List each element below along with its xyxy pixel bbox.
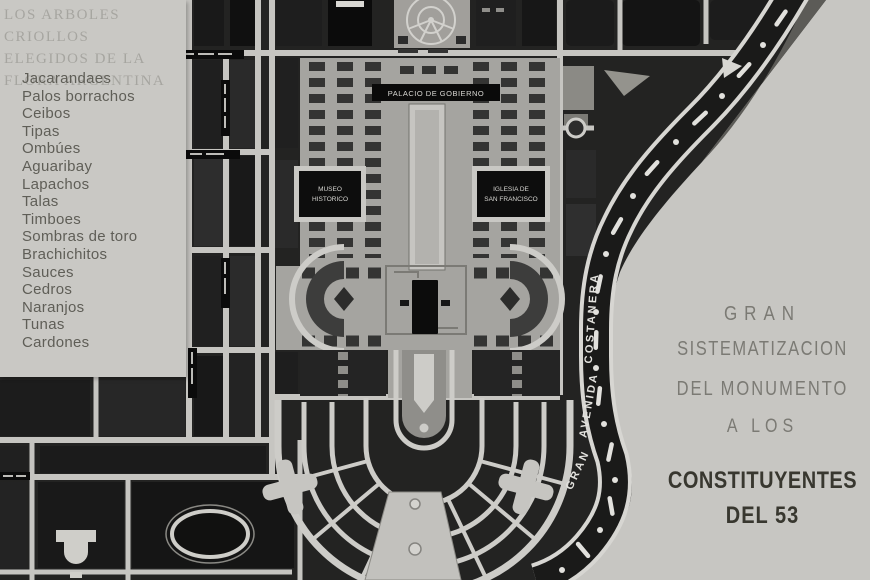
tree-list-item: Palos borrachos [22, 88, 182, 106]
tree-list-item: Lapachos [22, 176, 182, 194]
panel-title-line: LOS ARBOLES CRIOLLOS [4, 4, 182, 48]
san-francisco-church-block: IGLESIA DE SAN FRANCISCO [472, 166, 550, 222]
tree-list-item: Timboes [22, 211, 182, 229]
government-annex-block [328, 0, 372, 46]
central-monument [412, 280, 438, 334]
caption-line-constituyentes: CONSTITUYENTES [655, 467, 870, 495]
government-palace-block: PALACIO DE GOBIERNO [372, 84, 500, 101]
caption-line-del-monumento: DEL MONUMENTO [655, 378, 870, 401]
caption-line-del-53: DEL 53 [655, 502, 870, 530]
tree-list-item: Brachichitos [22, 246, 182, 264]
tree-list-item: Sauces [22, 264, 182, 282]
iglesia-label-line1: IGLESIA DE [493, 186, 529, 193]
palacio-label: PALACIO DE GOBIERNO [388, 89, 484, 98]
tree-list-item: Naranjos [22, 299, 182, 317]
tree-list-item: Talas [22, 193, 182, 211]
caption-block: GRAN SISTEMATIZACION DEL MONUMENTO A LOS… [655, 290, 870, 550]
tree-list-item: Cardones [22, 334, 182, 352]
tree-list-item: Cedros [22, 281, 182, 299]
reflecting-pool [409, 104, 445, 270]
caption-line-sistematizacion: SISTEMATIZACION [655, 338, 870, 361]
tree-list-item: Tunas [22, 316, 182, 334]
tree-list-item: Ceibos [22, 105, 182, 123]
roundabout [567, 119, 585, 137]
tree-list-item: Tipas [22, 123, 182, 141]
page: PALACIO DE GOBIERNO MUSEO HISTORICO IGLE… [0, 0, 870, 580]
history-museum-block: MUSEO HISTORICO [294, 166, 366, 222]
tree-list-panel: LOS ARBOLES CRIOLLOS ELEGIDOS DE LA FLOR… [0, 0, 186, 377]
tree-list-item: Sombras de toro [22, 228, 182, 246]
tree-list-item: Aguaribay [22, 158, 182, 176]
museo-label-line1: MUSEO [318, 186, 342, 193]
museo-label-line2: HISTORICO [312, 196, 348, 203]
tree-list-item: Ombúes [22, 140, 182, 158]
iglesia-label-line2: SAN FRANCISCO [484, 196, 537, 203]
caption-line-gran: GRAN [655, 302, 870, 326]
monument-complex: PALACIO DE GOBIERNO MUSEO HISTORICO IGLE… [276, 0, 562, 398]
circular-plaza [394, 0, 470, 48]
caption-line-a-los: A LOS [655, 416, 870, 438]
tree-list: Jacarandaes Palos borrachos Ceibos Tipas… [22, 70, 182, 352]
pond [166, 505, 254, 563]
tree-list-item: Jacarandaes [22, 70, 182, 88]
panel-title-line: ELEGIDOS DE LA [4, 48, 182, 70]
